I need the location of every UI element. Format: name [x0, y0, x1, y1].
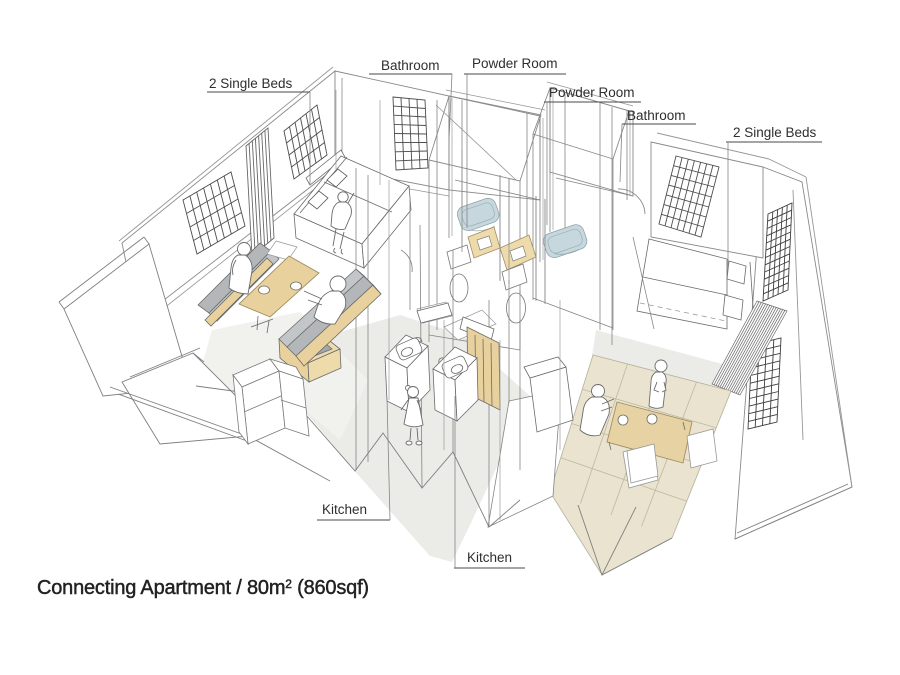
svg-text:Bathroom: Bathroom [627, 108, 686, 123]
svg-text:Connecting Apartment / 80m2 (8: Connecting Apartment / 80m2 (860sqf) [37, 577, 369, 599]
svg-text:2 Single Beds: 2 Single Beds [733, 125, 817, 140]
svg-text:Kitchen: Kitchen [322, 502, 367, 517]
svg-text:Kitchen: Kitchen [467, 550, 512, 565]
svg-text:Bathroom: Bathroom [381, 58, 440, 73]
svg-text:2 Single Beds: 2 Single Beds [209, 76, 293, 91]
svg-text:Powder Room: Powder Room [549, 85, 635, 100]
svg-text:Powder Room: Powder Room [472, 56, 558, 71]
